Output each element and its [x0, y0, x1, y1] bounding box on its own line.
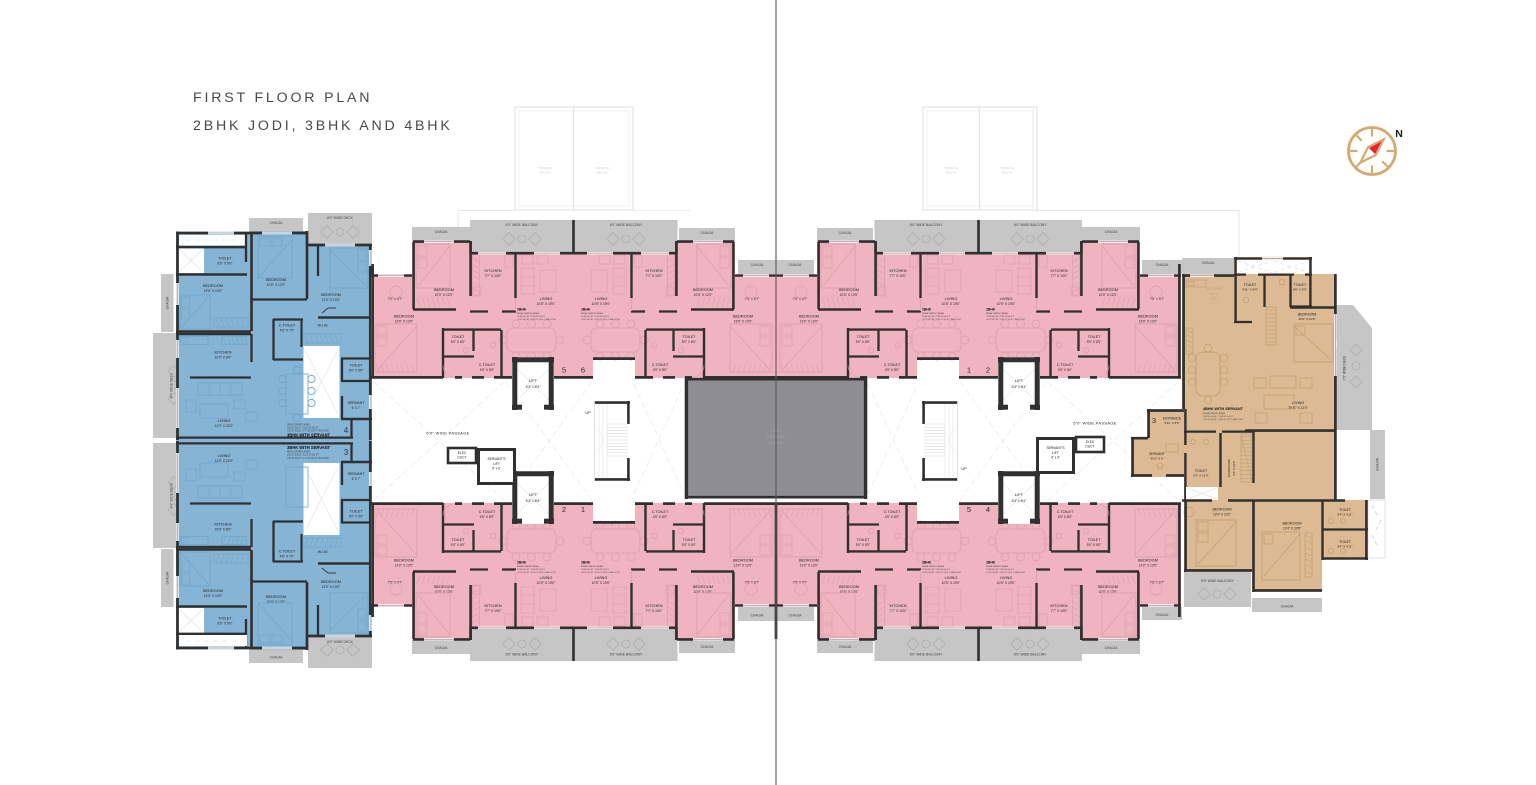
svg-text:73.88 SQ.M. / 795.09 SQ.FT.: 73.88 SQ.M. / 795.09 SQ.FT.: [517, 316, 546, 318]
svg-text:10'5" X 19'0": 10'5" X 19'0": [592, 302, 611, 306]
svg-text:DUCT: DUCT: [457, 455, 466, 459]
svg-text:13'0" X 10'0": 13'0" X 10'0": [204, 289, 223, 293]
svg-text:TOILET: TOILET: [350, 510, 364, 514]
svg-text:UP: UP: [961, 467, 967, 471]
svg-text:BEDROOM: BEDROOM: [321, 579, 341, 584]
svg-text:LIVING: LIVING: [540, 296, 553, 301]
svg-text:6'3" x 8'4": 6'3" x 8'4": [1012, 385, 1028, 389]
svg-text:TOILET: TOILET: [1088, 538, 1102, 542]
svg-text:4'5" X 8'0": 4'5" X 8'0": [653, 368, 667, 372]
svg-text:6: 6: [581, 366, 585, 375]
svg-text:RERA CARPET AREA: RERA CARPET AREA: [581, 565, 603, 568]
svg-text:LIVING: LIVING: [1292, 401, 1304, 405]
svg-text:10'5" X 19'0": 10'5" X 19'0": [592, 581, 611, 585]
svg-text:7'0" WIDE DECK: 7'0" WIDE DECK: [1343, 355, 1347, 381]
svg-text:3BHK WITH SERVANT: 3BHK WITH SERVANT: [287, 433, 331, 438]
svg-text:7'7" X 10'0": 7'7" X 10'0": [1051, 274, 1069, 278]
svg-text:6'0" WIDE BALCONY: 6'0" WIDE BALCONY: [610, 653, 643, 657]
svg-text:6' x 6': 6' x 6': [492, 467, 501, 471]
svg-text:BEDROOM: BEDROOM: [434, 584, 454, 589]
svg-text:CHAJJA: CHAJJA: [751, 614, 765, 618]
svg-text:SERVANT'S: SERVANT'S: [487, 457, 506, 461]
svg-text:LIVING: LIVING: [1000, 296, 1013, 301]
svg-text:13'0" X 10'0": 13'0" X 10'0": [204, 594, 223, 598]
svg-text:+9.31 SQ.M. / 100.21 SQ.FT. BA: +9.31 SQ.M. / 100.21 SQ.FT. BALCONY: [581, 318, 621, 321]
svg-text:LIVING: LIVING: [1000, 575, 1013, 580]
svg-text:KITCHEN: KITCHEN: [889, 603, 906, 608]
svg-text:C.TOILET: C.TOILET: [652, 510, 669, 514]
svg-text:SERVANT: SERVANT: [347, 401, 365, 405]
svg-text:8'4" X 4'11": 8'4" X 4'11": [1337, 513, 1352, 517]
svg-text:LIVING: LIVING: [540, 575, 553, 580]
svg-text:5'0" X 8'0": 5'0" X 8'0": [682, 543, 696, 547]
svg-text:LIVING: LIVING: [945, 575, 958, 580]
svg-text:9'8" X 12'0": 9'8" X 12'0": [1232, 461, 1236, 476]
svg-text:6'3" x 8'4": 6'3" x 8'4": [526, 385, 542, 389]
svg-text:BELOW: BELOW: [540, 171, 551, 175]
svg-text:RERA CARPET AREA: RERA CARPET AREA: [986, 312, 1008, 315]
svg-text:LIFT: LIFT: [1015, 378, 1024, 383]
svg-text:10'0" X 8'0": 10'0" X 8'0": [215, 528, 233, 532]
svg-text:4'6" X 7'0": 4'6" X 7'0": [280, 555, 294, 559]
svg-text:RERA CARPET AREA: RERA CARPET AREA: [517, 312, 539, 315]
svg-text:10'5" X 19'0": 10'5" X 19'0": [942, 581, 961, 585]
svg-text:BEDROOM: BEDROOM: [1282, 522, 1301, 526]
svg-text:4'5" X 8'0": 4'5" X 8'0": [1058, 515, 1072, 519]
svg-text:LIVING: LIVING: [945, 296, 958, 301]
svg-text:+9.31 SQ.M. / 100.21 SQ.FT. BA: +9.31 SQ.M. / 100.21 SQ.FT. BALCONY: [922, 318, 962, 321]
svg-text:TOILET: TOILET: [683, 538, 697, 542]
svg-text:7'5" X 6'7": 7'5" X 6'7": [745, 581, 759, 585]
svg-text:4'6" X 7'0": 4'6" X 7'0": [280, 329, 294, 333]
svg-text:TOILET: TOILET: [857, 335, 871, 339]
svg-text:KITCHEN: KITCHEN: [645, 603, 662, 608]
svg-text:6'0" WIDE BALCONY: 6'0" WIDE BALCONY: [910, 653, 943, 657]
svg-text:2BHK: 2BHK: [517, 308, 527, 312]
svg-text:10'0" X 12'0": 10'0" X 12'0": [1099, 590, 1118, 594]
svg-text:BEDROOM: BEDROOM: [1298, 313, 1317, 317]
svg-text:BEDROOM: BEDROOM: [1212, 508, 1231, 512]
svg-text:CHAJJA: CHAJJA: [270, 656, 284, 660]
svg-text:KITCHEN: KITCHEN: [1050, 268, 1067, 273]
svg-text:TERRACE: TERRACE: [1000, 166, 1014, 170]
svg-text:11'0" X 22'0": 11'0" X 22'0": [215, 424, 234, 428]
svg-text:5'0" X 8'0": 5'0" X 8'0": [451, 340, 465, 344]
svg-text:8'4" X 4'11": 8'4" X 4'11": [1337, 545, 1352, 549]
svg-text:TOILET: TOILET: [857, 538, 871, 542]
svg-text:5'0" X 8'0": 5'0" X 8'0": [1087, 543, 1101, 547]
svg-text:C.TOILET: C.TOILET: [1057, 363, 1074, 367]
svg-text:10'0" X 12'0": 10'0" X 12'0": [1099, 293, 1118, 297]
svg-text:10'5" X 19'0": 10'5" X 19'0": [942, 302, 961, 306]
svg-text:ELEC: ELEC: [458, 451, 467, 455]
svg-text:6'0" WIDE BALCONY: 6'0" WIDE BALCONY: [1014, 653, 1047, 657]
svg-text:2: 2: [562, 505, 566, 514]
svg-text:TOILET: TOILET: [683, 335, 697, 339]
svg-text:10'5" X 19'0": 10'5" X 19'0": [997, 302, 1016, 306]
svg-text:10'0" X 12'0": 10'0" X 12'0": [435, 293, 454, 297]
svg-text:5'0" X 8'0": 5'0" X 8'0": [1087, 340, 1101, 344]
svg-text:6'2" X 12'0": 6'2" X 12'0": [1193, 474, 1208, 478]
svg-text:TOILET: TOILET: [1088, 335, 1102, 339]
svg-text:KITCHEN: KITCHEN: [889, 268, 906, 273]
svg-text:7'7" X 10'0": 7'7" X 10'0": [646, 274, 664, 278]
svg-text:102.87 SQ.M. / 1107.29 SQ.FT.: 102.87 SQ.M. / 1107.29 SQ.FT.: [287, 428, 319, 430]
svg-text:C.TOILET: C.TOILET: [1057, 510, 1074, 514]
svg-text:BEDROOM: BEDROOM: [203, 588, 223, 593]
svg-text:7'7" X 10'0": 7'7" X 10'0": [890, 274, 908, 278]
svg-text:4: 4: [986, 505, 990, 514]
svg-text:C.TOILET: C.TOILET: [652, 363, 669, 367]
svg-text:7'7" X 10'0": 7'7" X 10'0": [1051, 609, 1069, 613]
svg-text:SERVANT: SERVANT: [1149, 452, 1165, 456]
svg-text:12'0": 12'0": [1210, 297, 1217, 301]
svg-text:12'0" X 10'0": 12'0" X 10'0": [1298, 317, 1315, 321]
svg-text:13'0" X 12'0": 13'0" X 12'0": [395, 320, 414, 324]
svg-text:7'5" X 6'7": 7'5" X 6'7": [1150, 581, 1164, 585]
svg-text:164.20 SQ.M. / 1766.35 SQ.FT.: 164.20 SQ.M. / 1766.35 SQ.FT.: [1203, 416, 1234, 418]
svg-text:+9.31 SQ.M. / 100.21 SQ.FT. BA: +9.31 SQ.M. / 100.21 SQ.FT. BALCONY: [581, 571, 621, 574]
svg-text:10'5" X 19'0": 10'5" X 19'0": [997, 581, 1016, 585]
svg-text:73.88 SQ.M. / 795.09 SQ.FT.: 73.88 SQ.M. / 795.09 SQ.FT.: [517, 569, 546, 571]
svg-text:CHAJJA: CHAJJA: [270, 221, 284, 225]
svg-text:8'0" X 5'0": 8'0" X 5'0": [218, 262, 234, 266]
svg-text:2BHK: 2BHK: [986, 308, 996, 312]
svg-text:CHAJJA: CHAJJA: [1105, 646, 1119, 650]
svg-text:ENTRANCE: ENTRANCE: [1163, 417, 1182, 421]
svg-text:BEDROOM: BEDROOM: [394, 558, 414, 563]
svg-text:TOILET: TOILET: [1244, 283, 1257, 287]
svg-text:1: 1: [581, 505, 585, 514]
svg-text:C.TOILET: C.TOILET: [884, 510, 901, 514]
svg-text:2: 2: [986, 366, 990, 375]
svg-text:4'5" X 8'0": 4'5" X 8'0": [653, 515, 667, 519]
svg-text:TOILET: TOILET: [452, 538, 466, 542]
svg-text:10'0" X 12'0": 10'0" X 12'0": [435, 590, 454, 594]
svg-text:TOILET: TOILET: [1339, 540, 1351, 544]
svg-text:73.88 SQ.M. / 795.09 SQ.FT.: 73.88 SQ.M. / 795.09 SQ.FT.: [581, 316, 610, 318]
svg-text:8'0" X: 8'0" X: [1210, 292, 1219, 296]
svg-text:CHAJJA: CHAJJA: [839, 645, 853, 649]
svg-text:5'0" X 8'0": 5'0" X 8'0": [856, 543, 870, 547]
svg-text:C.TOILET: C.TOILET: [279, 324, 296, 328]
svg-text:C.TOILET: C.TOILET: [884, 363, 901, 367]
svg-text:RERA CARPET AREA: RERA CARPET AREA: [287, 424, 310, 427]
svg-text:3: 3: [1152, 416, 1156, 425]
svg-text:7'7" X 10'0": 7'7" X 10'0": [485, 609, 503, 613]
svg-text:FIRST FLOOR PLAN: FIRST FLOOR PLAN: [193, 90, 372, 106]
svg-text:73.88 SQ.M. / 795.09 SQ.FT.: 73.88 SQ.M. / 795.09 SQ.FT.: [581, 569, 610, 571]
svg-text:+9.31 SQ.M. / 100.21 SQ.FT. BA: +9.31 SQ.M. / 100.21 SQ.FT. BALCONY: [986, 318, 1026, 321]
svg-text:W.I.W.: W.I.W.: [318, 324, 329, 328]
svg-text:N: N: [1395, 128, 1403, 140]
svg-text:6'0" WIDE BALCONY: 6'0" WIDE BALCONY: [506, 223, 539, 227]
svg-text:+9.31 SQ.M. / 100.21 SQ.FT. BA: +9.31 SQ.M. / 100.21 SQ.FT. BALCONY: [517, 571, 557, 574]
svg-text:RERA CARPET AREA: RERA CARPET AREA: [1203, 412, 1225, 415]
svg-text:12'4" X 12'2": 12'4" X 12'2": [1213, 512, 1231, 516]
svg-text:C.TOILET: C.TOILET: [279, 550, 296, 554]
svg-text:5'0" X 6'0": 5'0" X 6'0": [349, 369, 363, 373]
svg-text:5'11" X 3'9": 5'11" X 3'9": [1164, 421, 1179, 425]
svg-text:73.88 SQ.M. / 795.09 SQ.FT.: 73.88 SQ.M. / 795.09 SQ.FT.: [986, 316, 1015, 318]
svg-text:4'5" X 8'0": 4'5" X 8'0": [480, 368, 494, 372]
svg-text:11'0" X 22'0": 11'0" X 22'0": [215, 459, 234, 463]
svg-text:TERRACE: TERRACE: [595, 166, 609, 170]
svg-text:KITCHEN: KITCHEN: [484, 603, 501, 608]
svg-text:10'5" X 19'0": 10'5" X 19'0": [537, 581, 556, 585]
svg-text:BEDROOM: BEDROOM: [1138, 558, 1158, 563]
svg-text:10'0" X 12'0": 10'0" X 12'0": [694, 293, 713, 297]
svg-text:W.I.W.: W.I.W.: [318, 550, 329, 554]
svg-text:CHAJJA: CHAJJA: [701, 231, 715, 235]
svg-text:LIFT: LIFT: [1052, 451, 1059, 455]
svg-text:7'7" X 10'0": 7'7" X 10'0": [890, 609, 908, 613]
svg-text:6'0" WIDE DECK: 6'0" WIDE DECK: [327, 640, 354, 644]
svg-text:LIFT: LIFT: [529, 492, 538, 497]
svg-text:BEDROOM: BEDROOM: [266, 594, 286, 599]
svg-text:RERA CARPET AREA: RERA CARPET AREA: [986, 565, 1008, 568]
svg-text:8'0" X 5'5": 8'0" X 5'5": [1293, 288, 1307, 292]
svg-text:2BHK: 2BHK: [922, 308, 932, 312]
svg-text:+16.33 SQ.M. / 177.83 SQ.FT. B: +16.33 SQ.M. / 177.83 SQ.FT. BALCONY: [287, 457, 330, 460]
svg-text:2BHK: 2BHK: [581, 560, 591, 564]
svg-text:8'10" X 6': 8'10" X 6': [1151, 457, 1164, 461]
svg-text:10'0" X 8'0": 10'0" X 8'0": [215, 356, 233, 360]
svg-text:11'0" X 10'0": 11'0" X 10'0": [322, 298, 341, 302]
svg-text:BELOW: BELOW: [1002, 171, 1013, 175]
svg-text:6' X 7': 6' X 7': [352, 406, 361, 410]
svg-text:LIVING: LIVING: [595, 575, 608, 580]
svg-text:5: 5: [562, 366, 566, 375]
svg-text:SERVANT'S: SERVANT'S: [1046, 446, 1065, 450]
svg-text:RERA CARPET AREA: RERA CARPET AREA: [287, 451, 310, 454]
svg-text:BEDROOM: BEDROOM: [1098, 584, 1118, 589]
svg-text:TOILET: TOILET: [350, 364, 364, 368]
svg-text:6'0" WIDE DECK: 6'0" WIDE DECK: [327, 216, 354, 220]
svg-text:LIFT: LIFT: [493, 462, 500, 466]
svg-text:5'0" X 8'0": 5'0" X 8'0": [856, 340, 870, 344]
svg-text:6' X 7': 6' X 7': [352, 477, 361, 481]
svg-text:CHAJJA: CHAJJA: [1156, 263, 1170, 267]
svg-text:CHAJJA: CHAJJA: [1281, 605, 1295, 609]
svg-text:5'0" X 8'0": 5'0" X 8'0": [682, 340, 696, 344]
svg-text:WARDROBE: WARDROBE: [1227, 459, 1231, 477]
svg-text:13'0" X 12'0": 13'0" X 12'0": [1139, 564, 1158, 568]
svg-text:+9.31 SQ.M. / 100.21 SQ.FT. BA: +9.31 SQ.M. / 100.21 SQ.FT. BALCONY: [922, 571, 962, 574]
svg-text:RERA CARPET AREA: RERA CARPET AREA: [517, 565, 539, 568]
svg-text:10'0" X 12'0": 10'0" X 12'0": [840, 293, 859, 297]
svg-text:12'4" X 10'5": 12'4" X 10'5": [1283, 526, 1301, 530]
svg-text:4BHK WITH SERVANT: 4BHK WITH SERVANT: [1203, 407, 1244, 411]
svg-text:4'5" X 8'0": 4'5" X 8'0": [1058, 368, 1072, 372]
svg-text:KITCHEN: KITCHEN: [645, 268, 662, 273]
svg-text:2BHK: 2BHK: [581, 308, 591, 312]
svg-text:KITCHEN: KITCHEN: [1206, 287, 1222, 291]
svg-text:6' x 6': 6' x 6': [1051, 456, 1060, 460]
svg-text:73.88 SQ.M. / 795.09 SQ.FT.: 73.88 SQ.M. / 795.09 SQ.FT.: [986, 569, 1015, 571]
svg-text:4: 4: [344, 426, 349, 435]
svg-text:13'0" X 12'0": 13'0" X 12'0": [734, 320, 753, 324]
svg-text:CHAJJA: CHAJJA: [165, 296, 169, 310]
svg-text:TOILET: TOILET: [218, 616, 232, 621]
svg-text:13'0" X 12'0": 13'0" X 12'0": [800, 564, 819, 568]
svg-text:2BHK: 2BHK: [517, 560, 527, 564]
svg-text:+18.13 SQ.M. / 195.15 SQ.FT. B: +18.13 SQ.M. / 195.15 SQ.FT. BALCONY: [1203, 418, 1244, 421]
svg-text:10'0" X 12'0": 10'0" X 12'0": [267, 283, 286, 287]
svg-text:BEDROOM: BEDROOM: [733, 558, 753, 563]
svg-text:LIFT: LIFT: [529, 378, 538, 383]
svg-text:5'0" WIDE PASSAGE: 5'0" WIDE PASSAGE: [1073, 421, 1116, 426]
svg-text:CHAJJA: CHAJJA: [701, 645, 715, 649]
svg-text:4'11" X 8'4": 4'11" X 8'4": [1242, 288, 1258, 292]
svg-text:5'0" X 6'0": 5'0" X 6'0": [349, 515, 363, 519]
svg-text:BEDROOM: BEDROOM: [799, 558, 819, 563]
svg-text:13'0" X 12'0": 13'0" X 12'0": [395, 564, 414, 568]
svg-text:CHAJJA: CHAJJA: [1156, 613, 1170, 617]
svg-text:6'3" x 8'4": 6'3" x 8'4": [1012, 499, 1028, 503]
svg-text:73.88 SQ.M. / 795.09 SQ.FT.: 73.88 SQ.M. / 795.09 SQ.FT.: [922, 569, 951, 571]
svg-text:CHAJJA: CHAJJA: [789, 263, 803, 267]
svg-text:73.88 SQ.M. / 795.09 SQ.FT.: 73.88 SQ.M. / 795.09 SQ.FT.: [922, 316, 951, 318]
svg-text:KITCHEN: KITCHEN: [1050, 603, 1067, 608]
svg-text:CHAJJA: CHAJJA: [1202, 261, 1216, 265]
svg-text:13'0" X 12'0": 13'0" X 12'0": [800, 320, 819, 324]
svg-text:BEDROOM: BEDROOM: [733, 314, 753, 319]
svg-text:LIVING: LIVING: [218, 453, 231, 458]
svg-text:RERA CARPET AREA: RERA CARPET AREA: [581, 312, 603, 315]
svg-text:26'11" X 12'0": 26'11" X 12'0": [1288, 406, 1308, 410]
svg-text:7'7" X 10'0": 7'7" X 10'0": [646, 609, 664, 613]
svg-text:BEDROOM: BEDROOM: [799, 314, 819, 319]
svg-text:6'0" WIDE BALCONY: 6'0" WIDE BALCONY: [1014, 223, 1047, 227]
svg-text:SERVANT: SERVANT: [347, 472, 365, 476]
svg-text:3BHK WITH SERVANT: 3BHK WITH SERVANT: [287, 445, 331, 450]
svg-text:LIFT: LIFT: [1015, 492, 1024, 497]
svg-text:4'5" X 8'0": 4'5" X 8'0": [480, 515, 494, 519]
svg-text:CHAJJA: CHAJJA: [751, 263, 765, 267]
svg-text:5'0" WIDE PASSAGE: 5'0" WIDE PASSAGE: [426, 431, 469, 436]
svg-text:C.TOILET: C.TOILET: [479, 363, 496, 367]
svg-text:LIVING: LIVING: [218, 418, 231, 423]
svg-text:TOILET: TOILET: [452, 335, 466, 339]
svg-text:KITCHEN: KITCHEN: [214, 522, 231, 527]
svg-text:TERRACE: TERRACE: [538, 166, 552, 170]
svg-text:5: 5: [967, 505, 971, 514]
svg-text:CHAJJA: CHAJJA: [1376, 457, 1380, 471]
svg-text:CHAJJA: CHAJJA: [1105, 230, 1119, 234]
svg-text:BEDROOM: BEDROOM: [1138, 314, 1158, 319]
svg-text:KITCHEN: KITCHEN: [214, 350, 231, 355]
svg-text:+9.31 SQ.M. / 100.21 SQ.FT. BA: +9.31 SQ.M. / 100.21 SQ.FT. BALCONY: [986, 571, 1026, 574]
svg-text:BEDROOM: BEDROOM: [394, 314, 414, 319]
svg-text:TOILET: TOILET: [218, 256, 232, 261]
svg-text:2BHK: 2BHK: [986, 560, 996, 564]
svg-text:+9.31 SQ.M. / 100.21 SQ.FT. BA: +9.31 SQ.M. / 100.21 SQ.FT. BALCONY: [517, 318, 557, 321]
svg-text:CHAJJA: CHAJJA: [435, 646, 449, 650]
svg-text:6'3" x 8'4": 6'3" x 8'4": [526, 499, 542, 503]
svg-text:4'5" X 8'0": 4'5" X 8'0": [885, 368, 899, 372]
svg-text:TERRACE: TERRACE: [944, 166, 958, 170]
svg-text:13'0" X 12'0": 13'0" X 12'0": [1139, 320, 1158, 324]
svg-text:6'0" WIDE BALCONY: 6'0" WIDE BALCONY: [506, 653, 539, 657]
svg-text:102.87 SQ.M. / 1107.29 SQ.FT.: 102.87 SQ.M. / 1107.29 SQ.FT.: [287, 455, 319, 457]
svg-text:TOILET: TOILET: [1294, 283, 1307, 287]
svg-text:11'0" X 10'0": 11'0" X 10'0": [322, 585, 341, 589]
svg-text:6'0" WIDE BALCONY: 6'0" WIDE BALCONY: [610, 223, 643, 227]
svg-text:DUCT: DUCT: [1085, 444, 1094, 448]
svg-text:2BHK JODI, 3BHK AND 4BHK: 2BHK JODI, 3BHK AND 4BHK: [193, 118, 453, 134]
svg-text:CHAJJA: CHAJJA: [839, 231, 853, 235]
svg-text:2BHK: 2BHK: [922, 560, 932, 564]
svg-text:ELEC: ELEC: [1086, 440, 1095, 444]
svg-text:BEDROOM: BEDROOM: [321, 292, 341, 297]
svg-text:BELOW: BELOW: [946, 171, 957, 175]
svg-text:10'0" X 12'0": 10'0" X 12'0": [840, 590, 859, 594]
svg-text:7'7" X 10'0": 7'7" X 10'0": [485, 274, 503, 278]
svg-text:1: 1: [967, 366, 971, 375]
svg-text:KITCHEN: KITCHEN: [484, 268, 501, 273]
svg-text:TOILET: TOILET: [1339, 508, 1351, 512]
svg-text:CHAJJA: CHAJJA: [435, 230, 449, 234]
svg-text:5'0" X 8'0": 5'0" X 8'0": [451, 543, 465, 547]
svg-text:TOILET: TOILET: [1195, 469, 1208, 473]
svg-text:7'5" X 6'7": 7'5" X 6'7": [793, 581, 807, 585]
svg-text:UP: UP: [585, 411, 591, 415]
svg-text:BEDROOM: BEDROOM: [839, 584, 859, 589]
svg-text:4'5" X 8'0": 4'5" X 8'0": [885, 515, 899, 519]
svg-text:3: 3: [344, 448, 348, 457]
svg-text:LIVING: LIVING: [595, 296, 608, 301]
svg-text:10'5" X 19'0": 10'5" X 19'0": [537, 302, 556, 306]
svg-text:6'0" WIDE BALCONY: 6'0" WIDE BALCONY: [1201, 579, 1234, 583]
svg-text:BEDROOM: BEDROOM: [203, 283, 223, 288]
svg-text:BELOW: BELOW: [597, 171, 608, 175]
svg-text:8'0" X 5'0": 8'0" X 5'0": [218, 622, 234, 626]
svg-text:RERA CARPET AREA: RERA CARPET AREA: [922, 312, 944, 315]
svg-text:BEDROOM: BEDROOM: [693, 584, 713, 589]
svg-text:CHAJJA: CHAJJA: [789, 614, 803, 618]
svg-text:7'5" X 6'7": 7'5" X 6'7": [388, 581, 402, 585]
svg-text:6'0" WIDE BALCONY: 6'0" WIDE BALCONY: [910, 223, 943, 227]
svg-text:13'0" X 12'0": 13'0" X 12'0": [734, 564, 753, 568]
svg-text:CHAJJA: CHAJJA: [165, 571, 169, 585]
svg-text:10'0" X 12'0": 10'0" X 12'0": [694, 590, 713, 594]
svg-text:C.TOILET: C.TOILET: [479, 510, 496, 514]
svg-text:RERA CARPET AREA: RERA CARPET AREA: [922, 565, 944, 568]
svg-text:10'0" X 12'0": 10'0" X 12'0": [267, 600, 286, 604]
